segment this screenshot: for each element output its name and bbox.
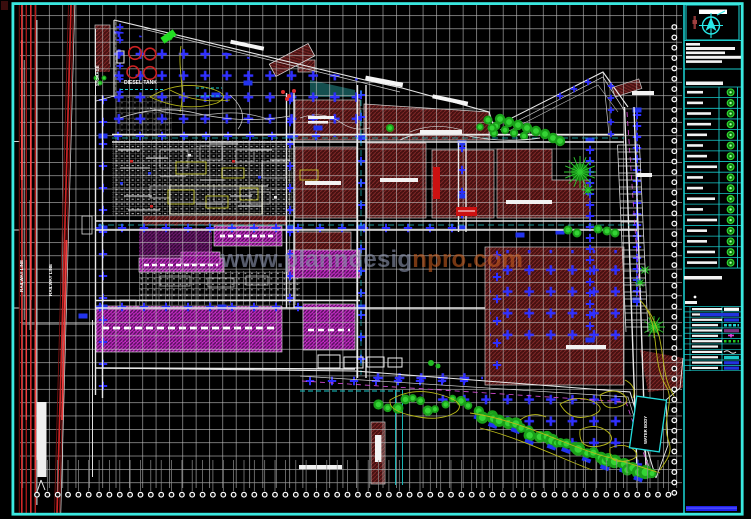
svg-text:www.planndesignpro.com: www.planndesignpro.com — [220, 246, 523, 273]
svg-text:DIESEL TANK: DIESEL TANK — [124, 80, 157, 86]
svg-text:WATER BODY: WATER BODY — [643, 416, 648, 444]
svg-text:STORAGE: STORAGE — [95, 65, 100, 86]
svg-text:RAILWAY LINE: RAILWAY LINE — [48, 264, 53, 296]
svg-text:RAILWAY LINE: RAILWAY LINE — [19, 260, 24, 292]
